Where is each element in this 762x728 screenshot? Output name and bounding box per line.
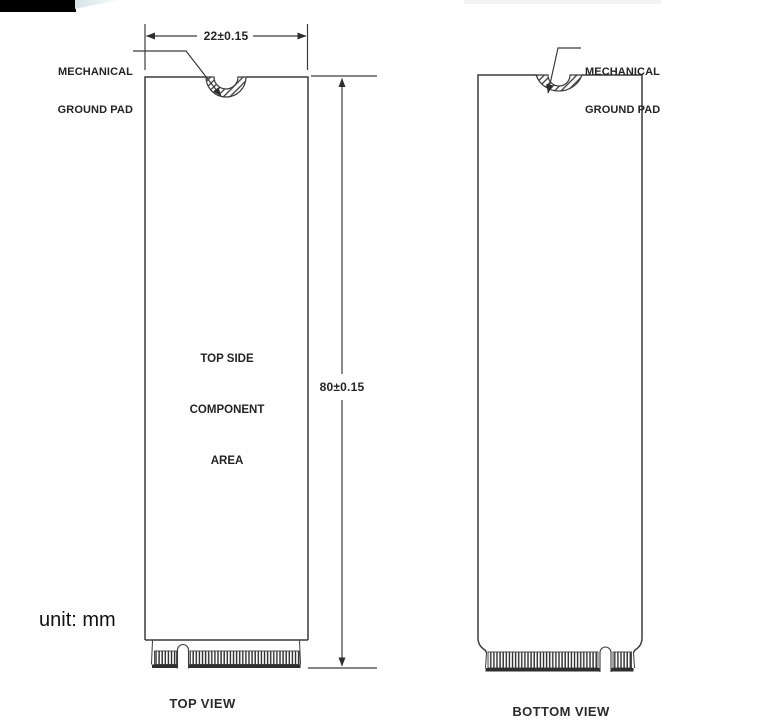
width-dimension-label: 22±0.15 xyxy=(197,29,255,43)
ground-pad-callout-bottom-view: MECHANICAL GROUND PAD xyxy=(585,41,695,141)
callout-line: MECHANICAL xyxy=(28,66,133,79)
component-area-line: TOP SIDE xyxy=(167,351,287,368)
callout-line: MECHANICAL xyxy=(585,66,695,79)
connector-key-notch xyxy=(178,645,189,669)
component-area-line: AREA xyxy=(167,453,287,470)
card-outline xyxy=(478,75,642,653)
height-dimension-label: 80±0.15 xyxy=(312,380,372,394)
unit-label: unit: mm xyxy=(39,609,116,632)
ground-pad-notch xyxy=(536,75,582,91)
component-area-label: TOP SIDE COMPONENT AREA xyxy=(167,317,287,504)
connector-key-notch xyxy=(600,647,611,672)
bottom-view-caption: BOTTOM VIEW xyxy=(504,704,618,719)
drawing-canvas: 22±0.15 80±0.15 MECHANICAL GROUND PAD ME… xyxy=(0,0,762,728)
ground-pad-callout-top-view: MECHANICAL GROUND PAD xyxy=(28,41,133,141)
ground-pad-notch xyxy=(206,77,246,97)
ground-pad-leader-line xyxy=(133,51,221,96)
callout-line: GROUND PAD xyxy=(28,104,133,117)
edge-connector xyxy=(486,647,635,672)
top-view-caption: TOP VIEW xyxy=(150,696,255,711)
bottom-view-drawing xyxy=(478,48,642,672)
height-dimension xyxy=(308,76,377,668)
component-area-line: COMPONENT xyxy=(167,402,287,419)
callout-line: GROUND PAD xyxy=(585,104,695,117)
edge-connector xyxy=(152,640,301,669)
